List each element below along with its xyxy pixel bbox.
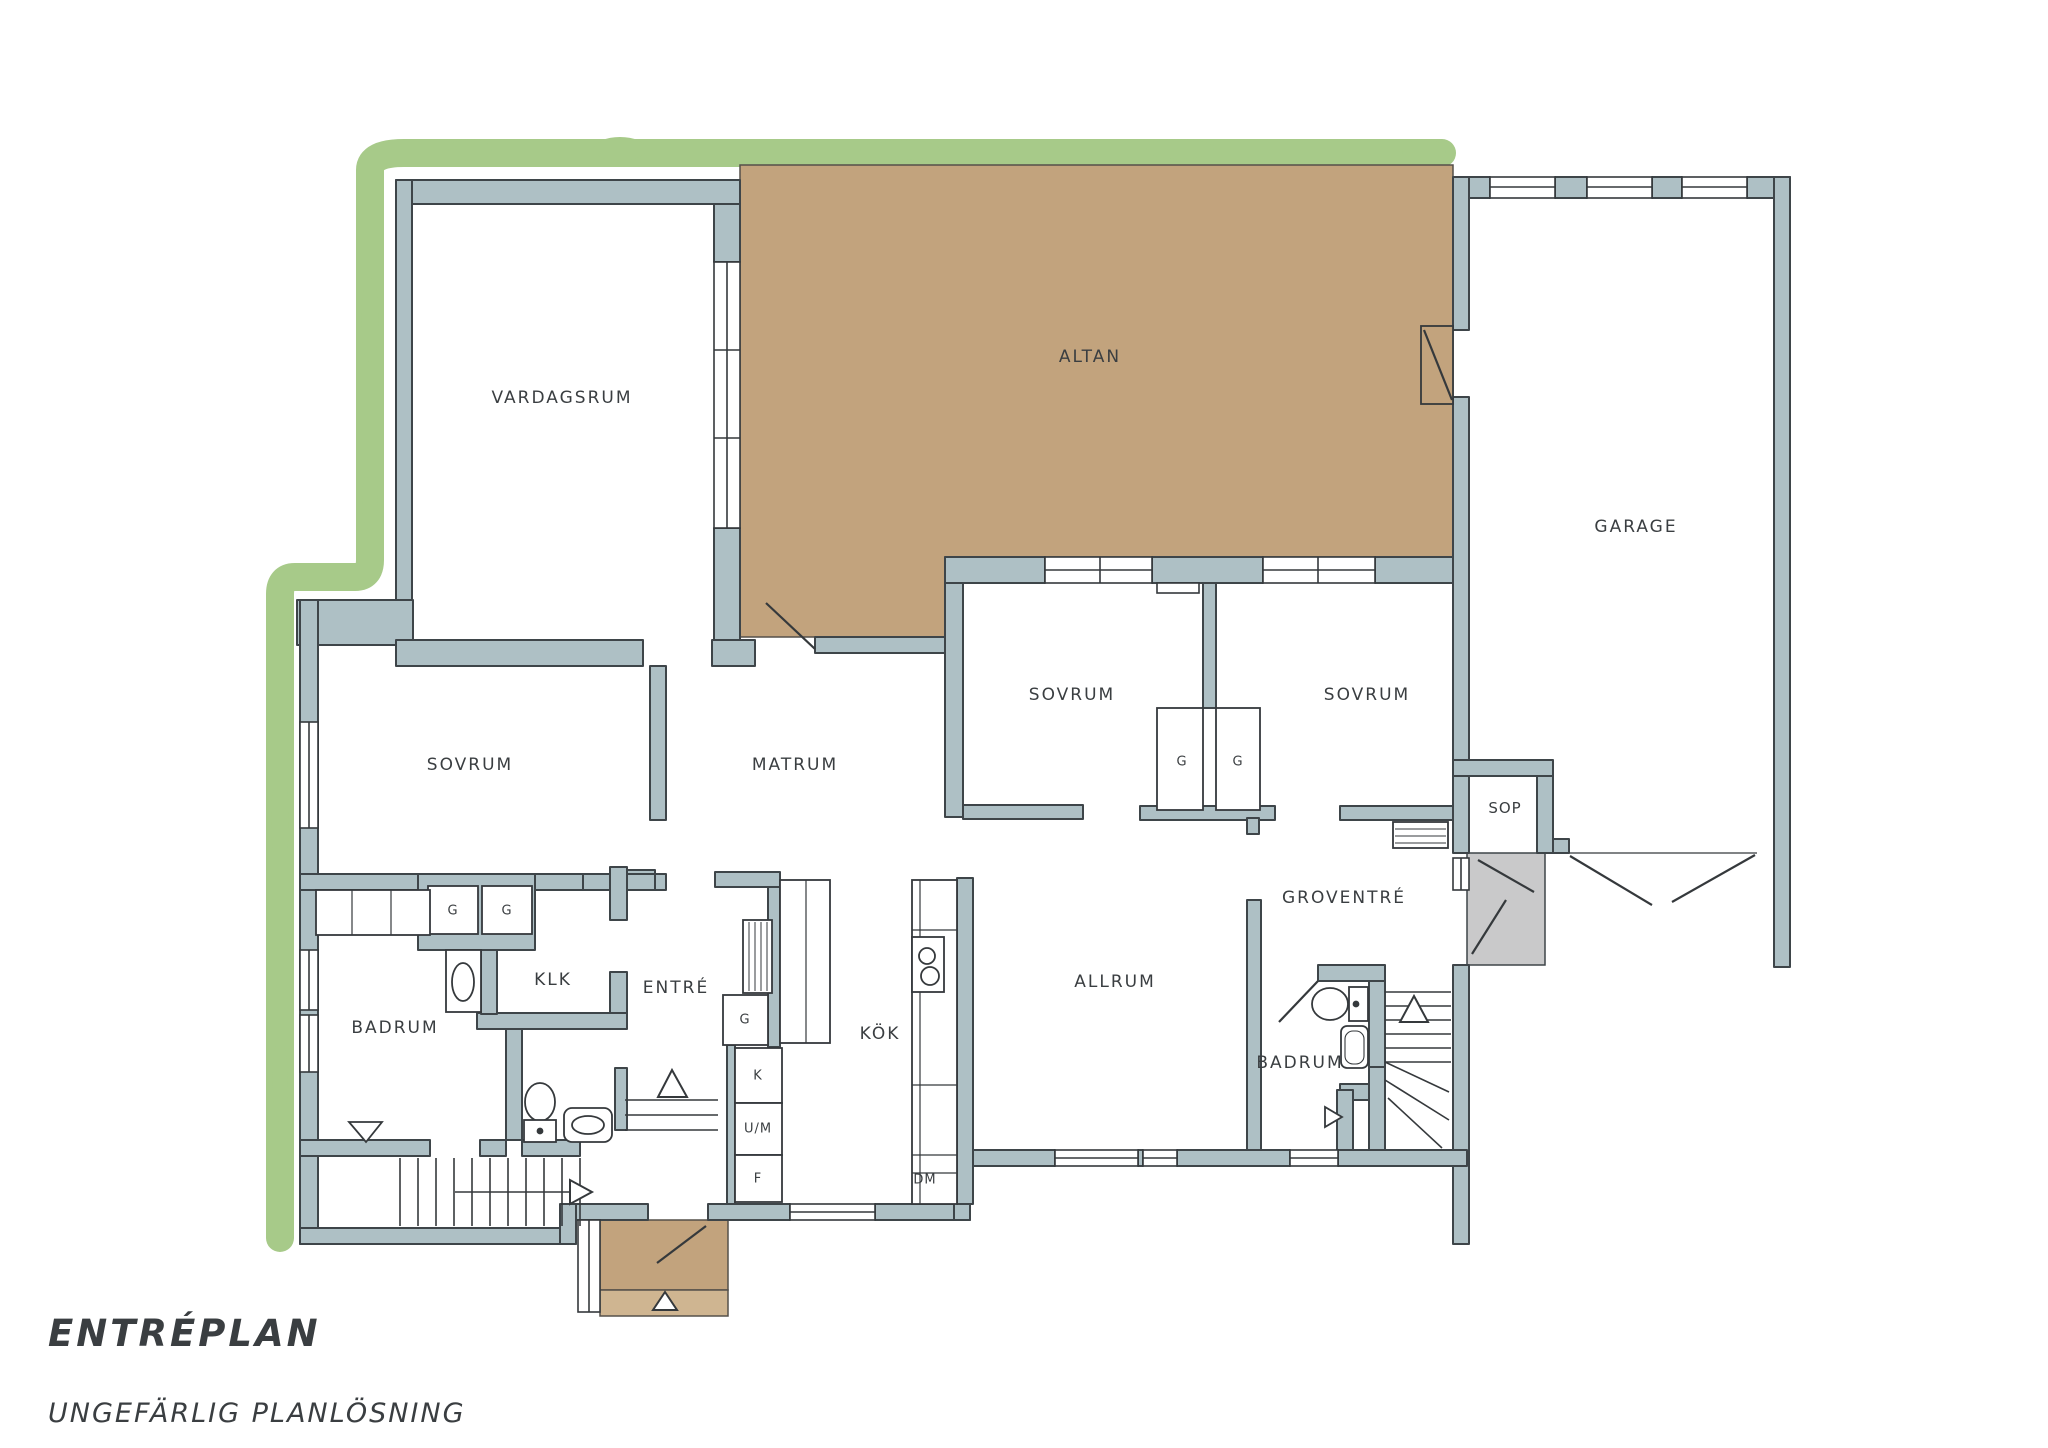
entry-porch-groventre [1467, 853, 1545, 965]
label-allrum: ALLRUM [1074, 972, 1156, 992]
bathroom-counter [316, 890, 430, 935]
label-klk: KLK [534, 970, 572, 990]
floorplan-page: VARDAGSRUM ALTAN GARAGE SOVRUM MATRUM SO… [0, 0, 2048, 1448]
label-garderob-mid-1: G [1176, 755, 1187, 770]
label-kyl: K [753, 1069, 763, 1084]
label-sop: SOP [1488, 799, 1521, 817]
label-garderob-left-1: G [447, 904, 458, 919]
label-matrum: MATRUM [752, 755, 838, 775]
label-garderob-left-2: G [501, 904, 512, 919]
label-frys: F [754, 1172, 762, 1187]
label-garage: GARAGE [1594, 517, 1677, 537]
page-subtitle: UNGEFÄRLIG PLANLÖSNING [48, 1398, 466, 1429]
label-ugn-micro: U/M [744, 1122, 772, 1137]
label-garderob-entre: G [739, 1013, 750, 1028]
steps-entre [625, 1070, 718, 1130]
toilet-icon [1312, 988, 1348, 1020]
floorplan-canvas [0, 0, 2048, 1448]
label-garderob-mid-2: G [1232, 755, 1243, 770]
label-diskmaskin: DM [913, 1173, 936, 1188]
label-groventre: GROVENTRÉ [1282, 888, 1406, 908]
label-sovrum-right: SOVRUM [1324, 685, 1410, 705]
label-sovrum-left: SOVRUM [427, 755, 513, 775]
label-badrum-right: BADRUM [1256, 1053, 1343, 1073]
tall-cabinets [780, 880, 830, 1043]
label-kok: KÖK [860, 1024, 901, 1044]
entry-porch-front [600, 1220, 728, 1316]
label-badrum-left: BADRUM [351, 1018, 438, 1038]
staircase-basement [1385, 992, 1451, 1148]
label-sovrum-mid: SOVRUM [1029, 685, 1115, 705]
radiator-icon [1393, 822, 1448, 848]
toilet-icon [525, 1083, 555, 1121]
label-altan: ALTAN [1059, 347, 1121, 367]
radiator-icon [743, 920, 772, 993]
label-entre: ENTRÉ [643, 978, 709, 998]
page-title: ENTRÉPLAN [48, 1312, 321, 1355]
label-vardagsrum: VARDAGSRUM [492, 388, 633, 408]
